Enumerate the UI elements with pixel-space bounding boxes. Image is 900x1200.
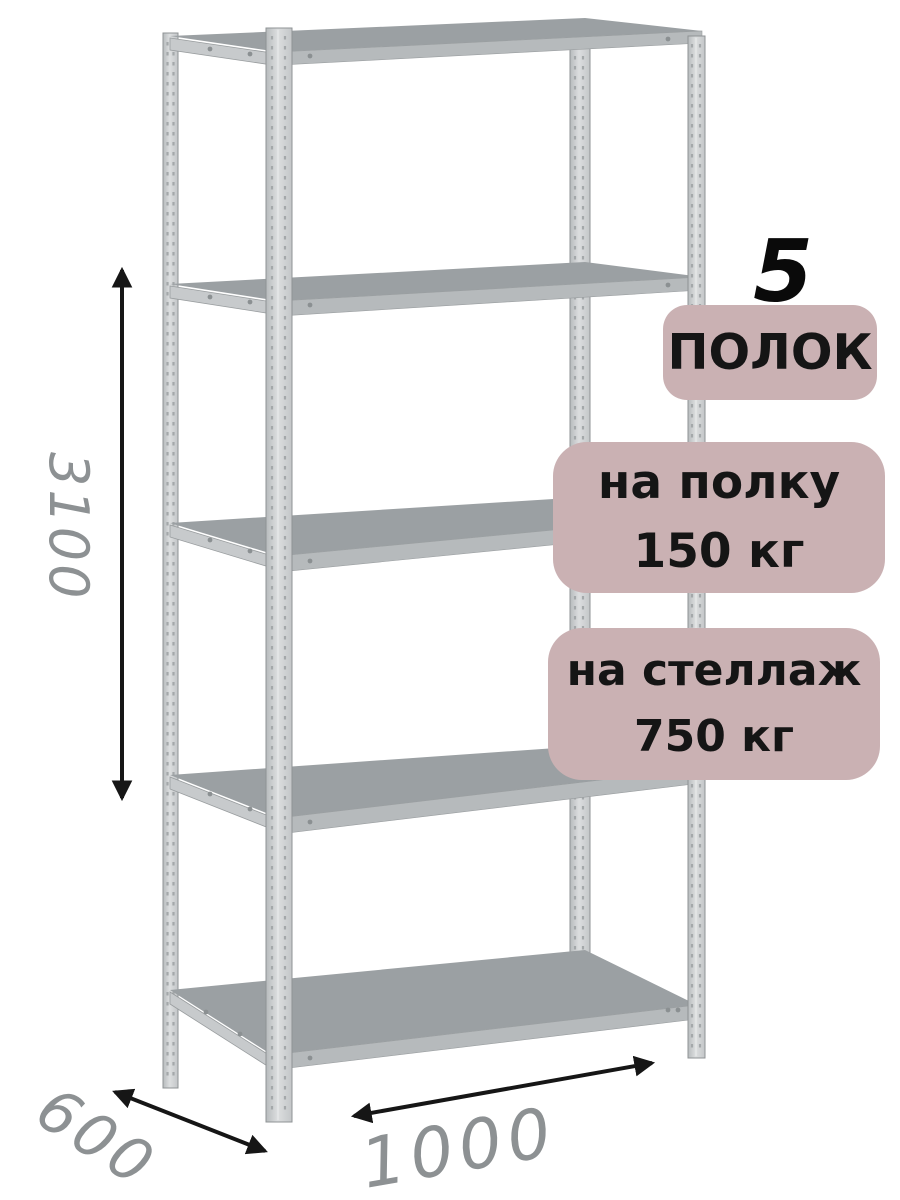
depth-dimension-label: 600 [24,1074,168,1200]
shelving-rack-illustration: 3100 600 1000 [0,0,900,1200]
per-shelf-load-value: 150 кг [634,518,805,586]
per-shelf-load-text: на полку [598,449,840,517]
rack-post-back-left [163,33,178,1088]
per-rack-load-text: на стеллаж [567,638,862,704]
shelf-count-badge: ПОЛОК [663,305,877,400]
rack-shelf-5 [170,950,697,1070]
rack-shelf-2 [170,262,702,316]
rack-shelf-1 [170,18,702,66]
rack-post-front-left [266,28,292,1122]
height-dimension-label: 3100 [37,452,100,601]
product-illustration: 3100 600 1000 5 ПОЛОК на полку 150 кг на… [0,0,900,1200]
per-shelf-load-badge: на полку 150 кг [553,442,885,593]
shelf-count-label: ПОЛОК [667,324,872,381]
per-rack-load-badge: на стеллаж 750 кг [548,628,880,780]
per-rack-load-value: 750 кг [634,704,794,770]
